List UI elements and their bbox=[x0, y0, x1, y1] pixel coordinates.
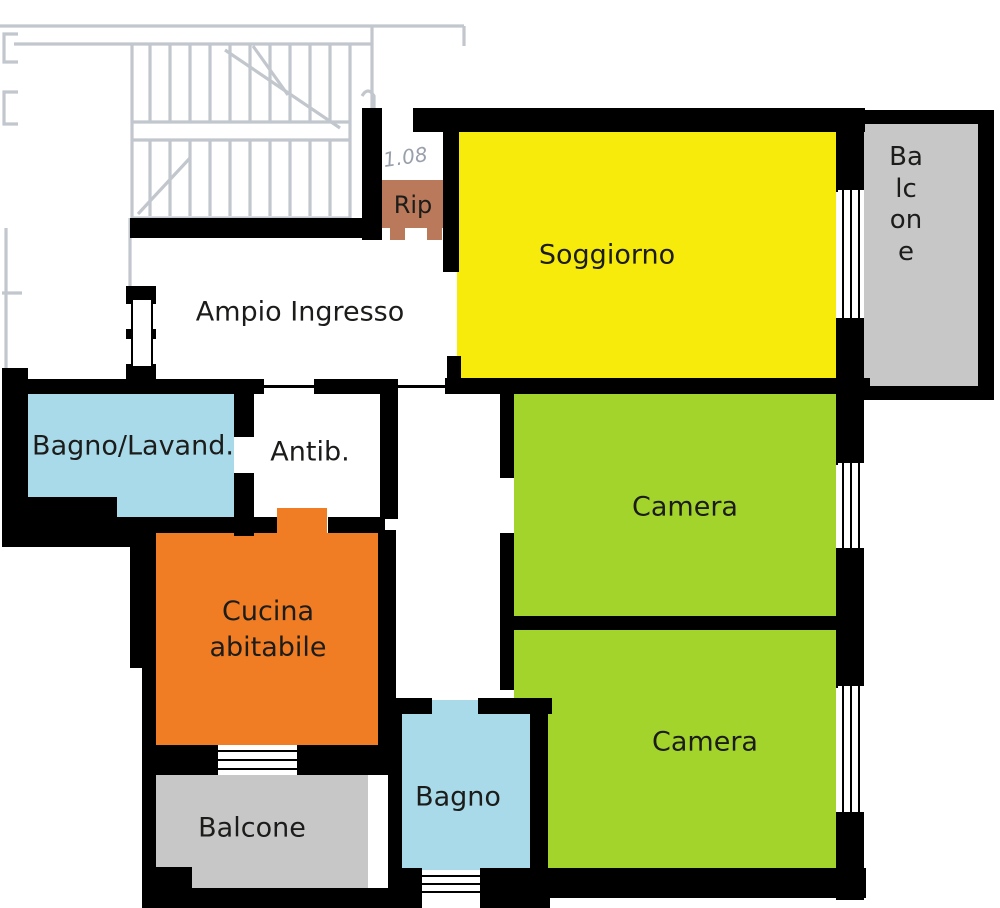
wall bbox=[478, 698, 552, 714]
wall bbox=[126, 364, 156, 380]
room-bagno-door-tab bbox=[430, 700, 478, 714]
wall bbox=[530, 707, 548, 872]
label-balcone-bottom: Balcone bbox=[198, 813, 306, 844]
wall bbox=[862, 386, 994, 400]
window-cucina bbox=[218, 745, 297, 775]
wall bbox=[297, 745, 398, 775]
wall bbox=[130, 518, 156, 668]
label-bagno: Bagno bbox=[415, 782, 501, 813]
wall bbox=[234, 393, 254, 437]
window-soggiorno bbox=[838, 190, 864, 318]
window-bagno bbox=[422, 870, 480, 900]
label-rip: Rip bbox=[394, 191, 433, 219]
wall bbox=[978, 110, 994, 400]
label-cucina: Cucina abitabile bbox=[180, 594, 356, 666]
room-camera-2 bbox=[514, 630, 836, 708]
wall bbox=[500, 385, 514, 478]
window-camera-2 bbox=[838, 686, 864, 812]
wall bbox=[388, 868, 422, 908]
window-ingresso bbox=[131, 300, 153, 366]
label-bagno-lavanderia: Bagno/Lavand. bbox=[32, 431, 234, 462]
label-ampio-ingresso: Ampio Ingresso bbox=[196, 297, 405, 328]
wall bbox=[836, 812, 864, 900]
wall bbox=[447, 356, 461, 380]
room-cucina-door-tab bbox=[277, 508, 327, 534]
wall bbox=[500, 628, 514, 690]
wall bbox=[413, 108, 865, 132]
wall bbox=[862, 110, 994, 124]
wall bbox=[388, 712, 402, 872]
door-line bbox=[263, 385, 315, 388]
wall bbox=[314, 379, 398, 394]
wall bbox=[500, 533, 514, 618]
wall bbox=[530, 868, 866, 898]
wall bbox=[836, 548, 864, 688]
wall bbox=[2, 379, 264, 394]
wall bbox=[16, 497, 117, 520]
room-rip-foot bbox=[427, 228, 442, 240]
wall bbox=[443, 130, 459, 272]
door-line bbox=[397, 385, 446, 388]
label-antibagno: Antib. bbox=[270, 437, 349, 468]
window-camera-1 bbox=[838, 463, 864, 548]
wall bbox=[130, 218, 382, 238]
wall bbox=[152, 745, 218, 775]
wall bbox=[500, 616, 840, 630]
wall bbox=[152, 888, 392, 908]
label-camera-1: Camera bbox=[632, 492, 738, 523]
wall bbox=[836, 318, 864, 380]
wall bbox=[328, 517, 385, 533]
label-camera-2: Camera bbox=[652, 727, 758, 758]
wall bbox=[836, 380, 864, 465]
wall bbox=[380, 393, 398, 519]
wall bbox=[836, 126, 864, 192]
room-rip-foot bbox=[390, 228, 405, 240]
floor-plan: 1.08 bbox=[0, 0, 1000, 908]
label-balcone-right: Balcone bbox=[889, 142, 923, 268]
label-soggiorno: Soggiorno bbox=[539, 240, 675, 271]
